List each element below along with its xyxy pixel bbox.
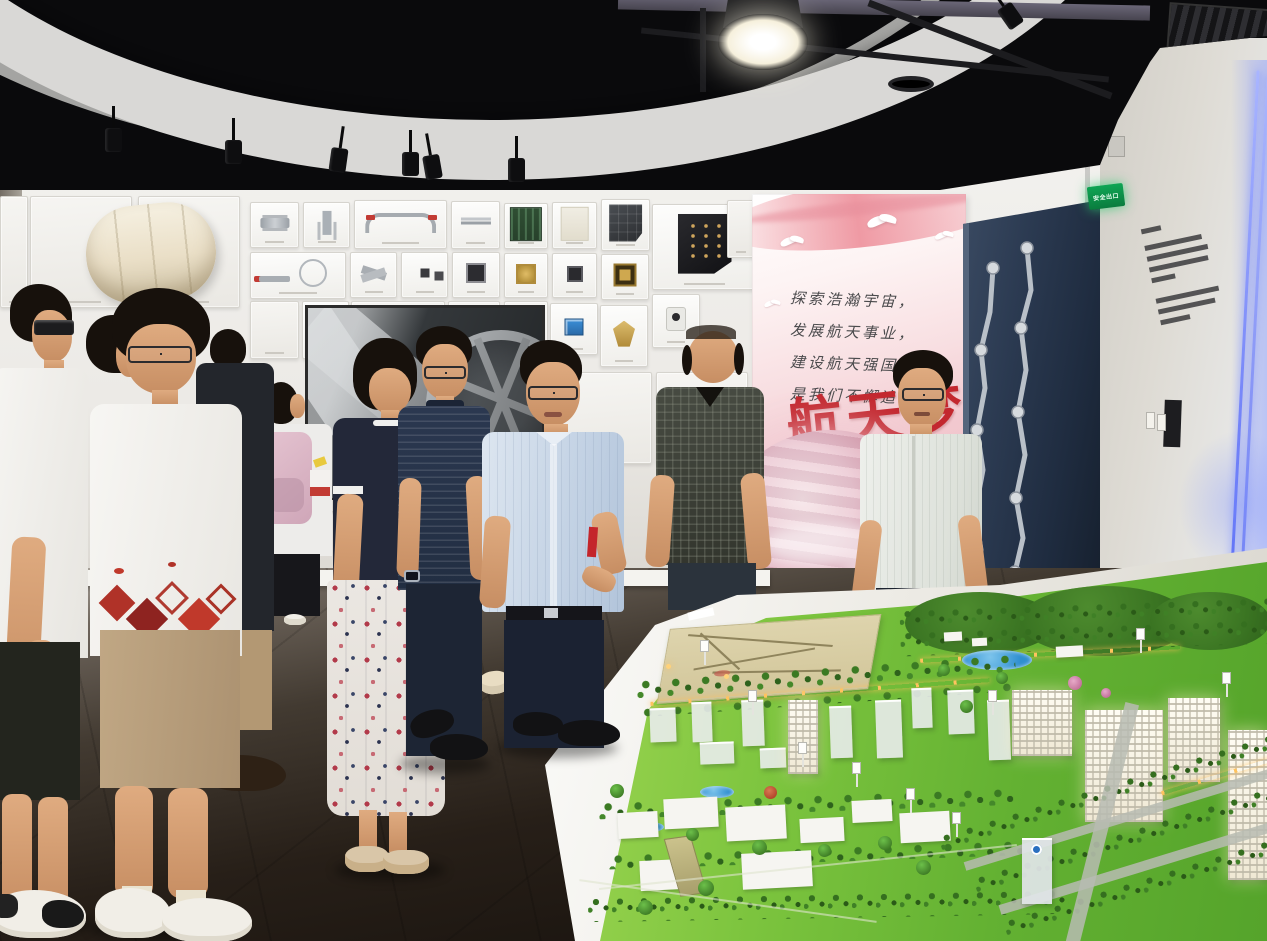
model-tree bbox=[878, 836, 892, 850]
pink-tree bbox=[1068, 676, 1082, 690]
model-signpost bbox=[748, 690, 757, 702]
red-tree bbox=[764, 786, 777, 799]
model-signpost bbox=[852, 762, 861, 774]
translucent-building bbox=[987, 700, 1011, 761]
sneaker-heel bbox=[0, 894, 18, 918]
translucent-building bbox=[947, 690, 975, 735]
model-signpost bbox=[1222, 672, 1231, 684]
print-shape bbox=[155, 581, 189, 615]
translucent-building bbox=[760, 748, 787, 769]
glasses bbox=[128, 346, 192, 363]
white-building bbox=[972, 638, 987, 647]
arm bbox=[396, 478, 421, 579]
model-signpost bbox=[906, 788, 915, 800]
logo-tower bbox=[1022, 838, 1052, 904]
leg bbox=[115, 786, 153, 898]
white-sneaker bbox=[95, 888, 171, 938]
black-shoe bbox=[558, 720, 620, 746]
model-tree bbox=[686, 828, 699, 841]
model-signpost bbox=[952, 812, 961, 824]
translucent-building bbox=[649, 708, 676, 743]
model-signpost bbox=[798, 742, 807, 754]
face bbox=[32, 310, 72, 362]
translucent-building bbox=[875, 700, 903, 759]
white-building bbox=[725, 804, 787, 841]
ankle bbox=[389, 812, 407, 852]
model-tree bbox=[938, 664, 950, 676]
black-shoe bbox=[513, 712, 563, 736]
pink-tree bbox=[1101, 688, 1111, 698]
model-signpost bbox=[700, 640, 709, 652]
white-building bbox=[944, 632, 962, 642]
lamp-glow-dot bbox=[724, 674, 729, 679]
model-tree bbox=[698, 880, 714, 896]
white-sneaker bbox=[162, 898, 252, 941]
khaki-shorts bbox=[100, 630, 240, 788]
model-tree bbox=[916, 860, 931, 875]
lamp-glow-dot bbox=[666, 664, 671, 669]
tan-sandal bbox=[383, 850, 429, 874]
exhibition-hall-photo: 探索浩瀚宇宙， 发展航天事业， 建设航天强国， 是我们不懈追求 航天梦 bbox=[0, 0, 1267, 941]
glasses bbox=[424, 366, 466, 379]
mouth bbox=[544, 412, 562, 417]
wristwatch bbox=[404, 570, 420, 582]
belt-buckle bbox=[544, 608, 558, 618]
translucent-building bbox=[829, 706, 853, 759]
white-building bbox=[1056, 645, 1084, 657]
illuminated-building bbox=[1012, 690, 1072, 756]
model-tree bbox=[960, 700, 973, 713]
model-tree bbox=[610, 784, 624, 798]
white-building bbox=[663, 797, 718, 830]
white-building bbox=[799, 817, 844, 843]
dark-shorts bbox=[0, 642, 80, 800]
print-shape bbox=[168, 562, 176, 567]
white-building bbox=[617, 811, 658, 839]
person-blue-shirt-guide bbox=[478, 340, 630, 760]
model-signpost bbox=[1136, 628, 1145, 640]
glasses bbox=[34, 320, 74, 335]
model-tree bbox=[638, 900, 653, 915]
white-tshirt bbox=[90, 404, 242, 656]
model-tree bbox=[996, 672, 1008, 684]
model-signpost bbox=[988, 690, 997, 702]
shirt-placket bbox=[550, 444, 557, 608]
print-shape bbox=[114, 568, 124, 574]
white-building bbox=[851, 799, 892, 823]
translucent-building bbox=[911, 688, 932, 729]
person-graphic-tee bbox=[70, 288, 252, 941]
model-tree bbox=[818, 844, 831, 857]
glasses bbox=[528, 386, 578, 400]
leg bbox=[168, 788, 208, 898]
white-cuff bbox=[333, 486, 363, 494]
model-tree bbox=[752, 840, 767, 855]
translucent-building bbox=[700, 741, 735, 764]
translucent-building bbox=[691, 702, 712, 743]
